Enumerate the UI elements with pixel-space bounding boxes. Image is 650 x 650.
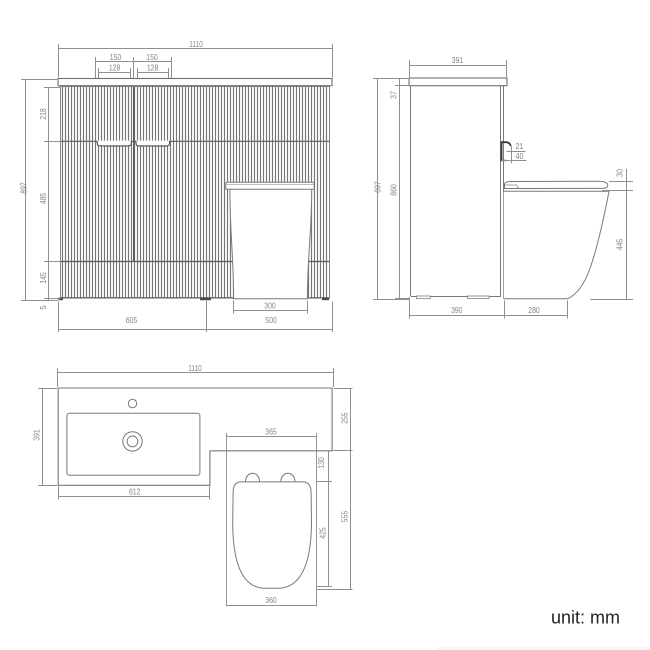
- svg-text:445: 445: [615, 238, 624, 250]
- svg-text:30: 30: [615, 169, 624, 177]
- svg-text:unit: mm: unit: mm: [551, 608, 620, 628]
- svg-text:5: 5: [39, 305, 48, 310]
- svg-text:365: 365: [265, 427, 277, 436]
- svg-text:360: 360: [265, 596, 277, 605]
- svg-text:555: 555: [340, 510, 349, 522]
- svg-text:128: 128: [147, 64, 159, 73]
- svg-text:1110: 1110: [188, 364, 202, 373]
- svg-text:37: 37: [389, 91, 398, 99]
- svg-text:500: 500: [265, 316, 277, 325]
- svg-text:897: 897: [20, 182, 29, 194]
- svg-text:897: 897: [374, 181, 383, 193]
- svg-text:128: 128: [109, 64, 121, 73]
- svg-text:255: 255: [340, 412, 349, 424]
- svg-text:150: 150: [146, 53, 158, 62]
- svg-text:860: 860: [389, 184, 398, 196]
- svg-text:300: 300: [264, 302, 276, 311]
- svg-text:391: 391: [452, 56, 464, 65]
- svg-text:280: 280: [528, 306, 540, 315]
- svg-text:612: 612: [129, 488, 141, 497]
- svg-text:150: 150: [110, 53, 122, 62]
- svg-text:485: 485: [39, 192, 48, 204]
- svg-text:21: 21: [516, 142, 524, 151]
- svg-text:40: 40: [516, 152, 524, 161]
- svg-text:425: 425: [319, 527, 328, 539]
- svg-text:1110: 1110: [189, 40, 203, 49]
- svg-text:218: 218: [39, 108, 48, 120]
- svg-text:130: 130: [317, 457, 326, 469]
- svg-text:390: 390: [451, 306, 463, 315]
- svg-text:605: 605: [126, 316, 138, 325]
- svg-text:391: 391: [33, 429, 42, 441]
- svg-text:145: 145: [39, 272, 48, 284]
